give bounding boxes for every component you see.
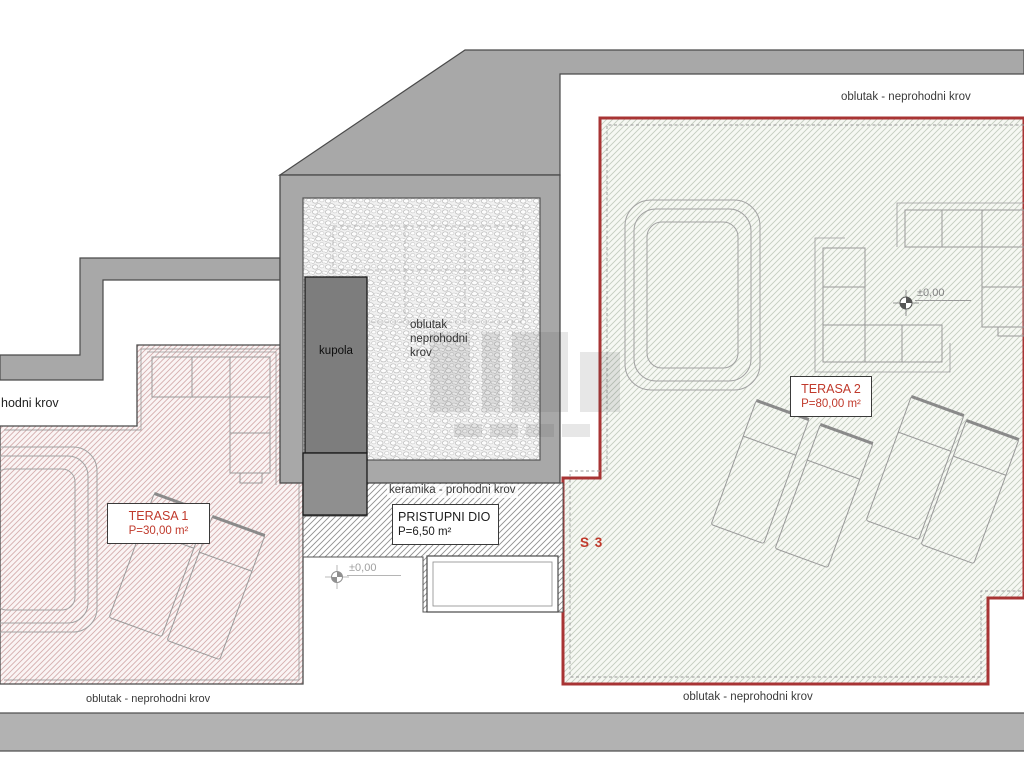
- annotation-center-roof: oblutak neprohodni krov: [410, 318, 468, 360]
- kupola-block: [305, 277, 367, 453]
- lower-skylight: [427, 556, 558, 612]
- annotation-roof-top: oblutak - neprohodni krov: [841, 91, 971, 105]
- annotation-center-roof-line2: neprohodni: [410, 332, 468, 346]
- terasa1-title: TERASA 1: [113, 508, 204, 524]
- annotation-roof-bottom-right: oblutak - neprohodni krov: [683, 691, 813, 705]
- annotation-walkway: keramika - prohodni krov: [387, 484, 518, 498]
- pristupni-label-box: PRISTUPNI DIO P=6,50 m²: [392, 504, 499, 545]
- stair-block: [303, 453, 367, 515]
- annotation-roof-bottom-left: oblutak - neprohodni krov: [86, 693, 210, 706]
- annotation-center-roof-line3: krov: [410, 346, 468, 360]
- elevation-marker-icon: [325, 565, 349, 589]
- annotation-center-roof-line1: oblutak: [410, 318, 468, 332]
- roof-plan-canvas: oblutak - neprohodni krov hodni krov ker…: [0, 0, 1024, 768]
- terasa2-title: TERASA 2: [796, 381, 866, 397]
- terasa2-area: P=80,00 m²: [796, 397, 866, 412]
- terasa2-label-box: TERASA 2 P=80,00 m²: [790, 376, 872, 417]
- pristupni-area: P=6,50 m²: [398, 525, 493, 540]
- annotation-roof-left-fragment: hodni krov: [1, 396, 59, 411]
- parapet-wall-bottom: [0, 713, 1024, 751]
- elevation-terrace2-label: ±0,00: [915, 287, 971, 301]
- terasa1-area: P=30,00 m²: [113, 524, 204, 539]
- unit-label-s3: S 3: [580, 535, 603, 550]
- elevation-access-label: ±0,00: [347, 562, 401, 576]
- terasa1-label-box: TERASA 1 P=30,00 m²: [107, 503, 210, 544]
- annotation-kupola: kupola: [307, 345, 365, 359]
- pristupni-title: PRISTUPNI DIO: [398, 509, 493, 525]
